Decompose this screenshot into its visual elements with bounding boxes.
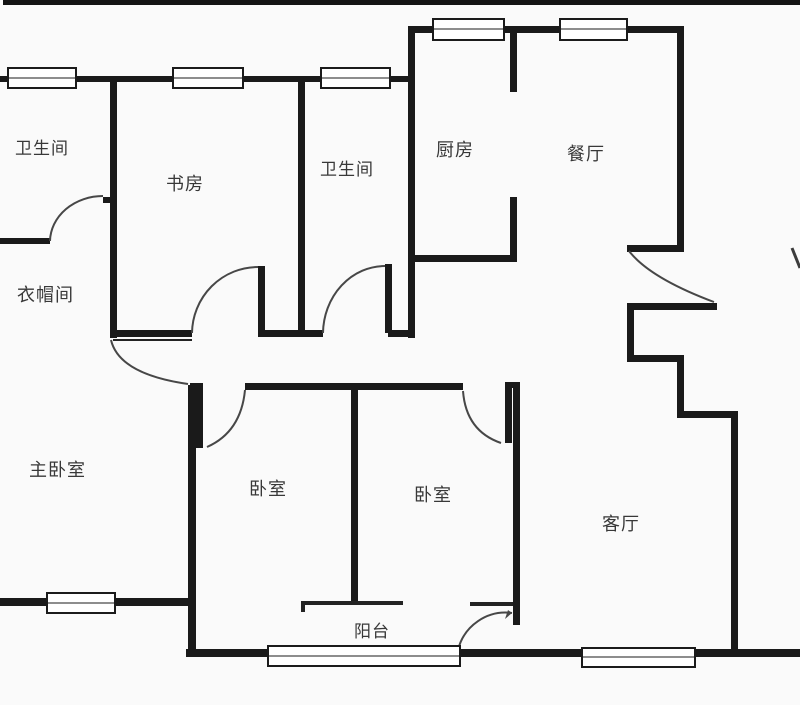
balcony-door-frame (302, 601, 403, 605)
balcony-door-frame (470, 602, 513, 606)
wall (351, 388, 358, 603)
room-label-bedroom-1: 卧室 (249, 481, 287, 499)
wall (110, 330, 192, 337)
door-arc (50, 196, 103, 241)
window-symbol (433, 19, 504, 40)
wall (731, 411, 738, 657)
wall (258, 330, 323, 337)
door-arc (323, 266, 385, 333)
photo-edge-mark (792, 248, 800, 268)
wall (0, 238, 50, 244)
wall (410, 255, 517, 262)
room-label-cloakroom: 衣帽间 (17, 287, 74, 305)
wall (103, 197, 110, 203)
door-leaf (258, 266, 265, 333)
room-label-bathroom-1: 卫生间 (15, 141, 69, 158)
door-arc-arrow (505, 610, 512, 619)
room-label-kitchen: 厨房 (436, 142, 474, 160)
wall (627, 303, 634, 362)
frame-lines-group (113, 248, 800, 612)
window-symbol (47, 593, 115, 613)
room-label-dining-room: 餐厅 (567, 146, 605, 164)
door-leaf (385, 264, 392, 333)
door-arc (192, 267, 258, 333)
door-arcs-group (50, 196, 714, 650)
wall (510, 197, 517, 261)
balcony-door-frame (301, 601, 305, 612)
room-label-living-room: 客厅 (602, 516, 640, 534)
room-label-study: 书房 (166, 176, 204, 194)
wall (110, 80, 117, 338)
floor-plan-drawing (0, 0, 800, 705)
window-symbol (268, 646, 460, 666)
floor-plan-page: 卫生间 书房 卫生间 厨房 餐厅 衣帽间 主卧室 卧室 卧室 客厅 阳台 (0, 0, 800, 705)
door-leaf (196, 390, 203, 448)
window-symbol (8, 68, 76, 88)
wall (408, 26, 415, 338)
door-arc (463, 391, 501, 443)
wall-detail-line (113, 339, 192, 341)
wall (677, 26, 684, 252)
wall (677, 411, 738, 418)
wall (510, 28, 517, 92)
door-arc (207, 390, 245, 447)
window-symbol (173, 68, 243, 88)
wall (627, 355, 684, 362)
window-symbol (560, 19, 627, 40)
wall (627, 245, 684, 252)
walls-group (0, 26, 800, 657)
room-label-master-bedroom: 主卧室 (29, 462, 86, 480)
room-label-bathroom-2: 卫生间 (320, 162, 374, 179)
wall (677, 355, 684, 418)
wall (298, 80, 305, 334)
door-leaf (505, 385, 512, 443)
window-symbol (582, 648, 695, 667)
wall (627, 303, 717, 310)
door-arc (458, 613, 512, 650)
window-symbol (321, 68, 390, 88)
wall (513, 382, 520, 625)
wall (188, 385, 196, 657)
door-arc (629, 251, 714, 302)
photo-top-edge (3, 0, 800, 5)
room-label-balcony: 阳台 (354, 624, 390, 641)
room-label-bedroom-2: 卧室 (414, 487, 452, 505)
door-arc (111, 340, 188, 384)
